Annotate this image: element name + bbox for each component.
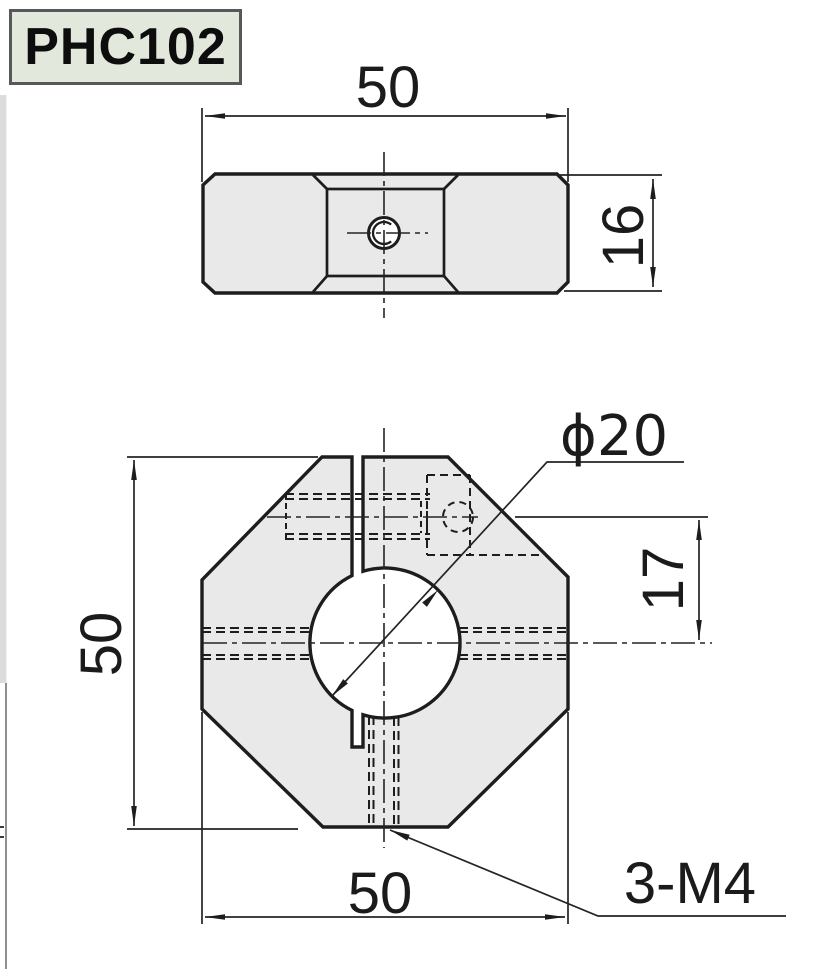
front-view (202, 428, 712, 848)
dim-front-height-label: 50 (69, 612, 134, 677)
drawing-page: PHC102 50 (0, 0, 834, 969)
dim-thickness: 16 (559, 175, 662, 291)
front-view-body (202, 457, 568, 827)
technical-drawing: 50 16 50 (0, 0, 834, 969)
thread-arrow (390, 830, 410, 841)
bore-arrow-lower (332, 679, 348, 696)
dim-front-width-label: 50 (348, 861, 413, 926)
bore-arrow-upper (422, 590, 438, 607)
callout-thread: 3-M4 (390, 830, 786, 916)
dim-bore-offset-label: 17 (631, 547, 696, 612)
top-view (203, 152, 568, 318)
dim-top-width: 50 (202, 55, 568, 182)
bore-diameter-label: ϕ20 (560, 404, 668, 469)
dim-top-width-label: 50 (356, 55, 421, 120)
dim-thickness-label: 16 (591, 204, 656, 269)
thread-callout-label: 3-M4 (624, 851, 756, 916)
